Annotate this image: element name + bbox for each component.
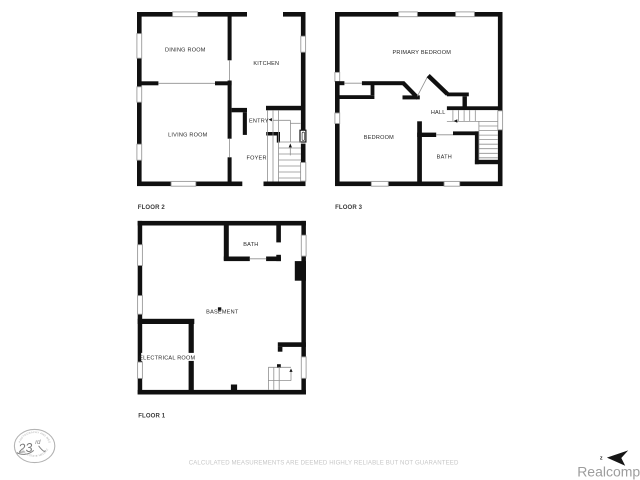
svg-text:BEDROOM: BEDROOM	[364, 135, 394, 141]
svg-text:LIVING ROOM: LIVING ROOM	[168, 133, 208, 139]
svg-text:BATH: BATH	[243, 242, 258, 248]
svg-text:FLOOR 3: FLOOR 3	[335, 205, 363, 211]
svg-text:z: z	[600, 456, 603, 462]
svg-text:BATH: BATH	[437, 155, 452, 161]
svg-text:ELECTRICAL ROOM: ELECTRICAL ROOM	[139, 355, 195, 361]
svg-text:rd: rd	[35, 440, 41, 446]
svg-text:CALCULATED MEASUREMENTS ARE DE: CALCULATED MEASUREMENTS ARE DEEMED HIGHL…	[189, 459, 459, 466]
svg-text:KITCHEN: KITCHEN	[253, 61, 279, 67]
svg-text:FLOOR 1: FLOOR 1	[138, 413, 166, 419]
svg-text:BASEMENT: BASEMENT	[206, 310, 239, 316]
svg-text:FOYER: FOYER	[246, 155, 266, 161]
svg-text:FLOOR 2: FLOOR 2	[138, 205, 166, 211]
svg-text:HALL: HALL	[431, 110, 446, 116]
svg-text:ENTRY: ENTRY	[249, 119, 269, 125]
svg-text:PHOTOGRAPHY AND MEDIA: PHOTOGRAPHY AND MEDIA	[0, 0, 52, 444]
svg-text:PRIMARY BEDROOM: PRIMARY BEDROOM	[393, 50, 452, 56]
svg-text:DINING ROOM: DINING ROOM	[165, 48, 206, 54]
svg-text:REAL ESTATE MEDIA CO: REAL ESTATE MEDIA CO	[0, 0, 49, 458]
svg-text:Realcomp: Realcomp	[577, 463, 640, 479]
